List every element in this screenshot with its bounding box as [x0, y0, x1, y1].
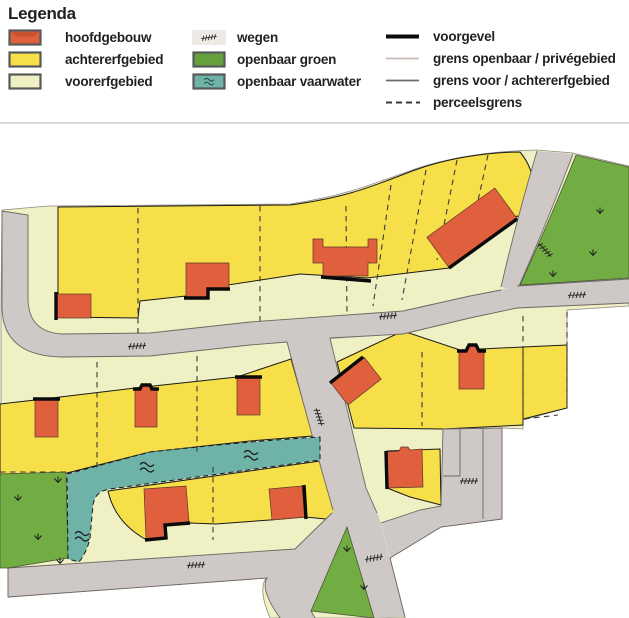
legend-label: openbaar vaarwater	[237, 74, 361, 89]
legend-divider	[0, 122, 629, 124]
front-back-line-icon	[385, 72, 421, 89]
water-swatch-icon	[192, 73, 226, 90]
legend-label: perceelsgrens	[433, 95, 522, 110]
building	[57, 294, 91, 318]
legend-item-perceelsgrens: perceelsgrens	[385, 93, 522, 111]
legend-label: wegen	[237, 30, 278, 45]
legend-label: voorgevel	[433, 29, 495, 44]
legend-label: grens openbaar / privégebied	[433, 51, 616, 66]
legend-label: achtererfgebied	[65, 52, 163, 67]
zoning-map	[0, 0, 629, 618]
zoning-plan-page: Legenda hoofdgebouw achtererfgebied voor…	[0, 0, 629, 618]
public-private-line-icon	[385, 50, 421, 67]
legend-item-openbaar-groen: openbaar groen	[192, 50, 336, 68]
legend-label: hoofdgebouw	[65, 30, 151, 45]
legend-label: openbaar groen	[237, 52, 336, 67]
legend-item-openbaar-vaarwater: openbaar vaarwater	[192, 72, 361, 90]
frontyard-swatch-icon	[8, 73, 42, 90]
building	[35, 400, 58, 437]
legend-label: grens voor / achtererfgebied	[433, 73, 610, 88]
green-swatch-icon	[192, 51, 226, 68]
legend-item-hoofdgebouw: hoofdgebouw	[8, 28, 151, 46]
backyard-swatch-icon	[8, 51, 42, 68]
building	[135, 386, 157, 427]
green-bottom-left	[0, 472, 68, 568]
voorgevel-line-icon	[385, 28, 421, 45]
legend-item-voorerfgebied: voorerfgebied	[8, 72, 152, 90]
building	[237, 378, 260, 415]
legend-item-achtererfgebied: achtererfgebied	[8, 50, 163, 68]
legend-label: voorerfgebied	[65, 74, 152, 89]
legend-item-grens-voor-achter: grens voor / achtererfgebied	[385, 71, 610, 89]
backyard-right-column	[523, 345, 567, 419]
legend-item-voorgevel: voorgevel	[385, 27, 495, 45]
building	[387, 447, 423, 488]
building	[269, 486, 305, 520]
legend-item-grens-openbaar-prive: grens openbaar / privégebied	[385, 49, 616, 67]
parcel-boundary-line-icon	[385, 94, 421, 111]
road-swatch-icon	[192, 29, 226, 46]
legend-title: Legenda	[8, 4, 76, 24]
legend-item-wegen: wegen	[192, 28, 278, 46]
building-swatch-icon	[8, 29, 42, 46]
